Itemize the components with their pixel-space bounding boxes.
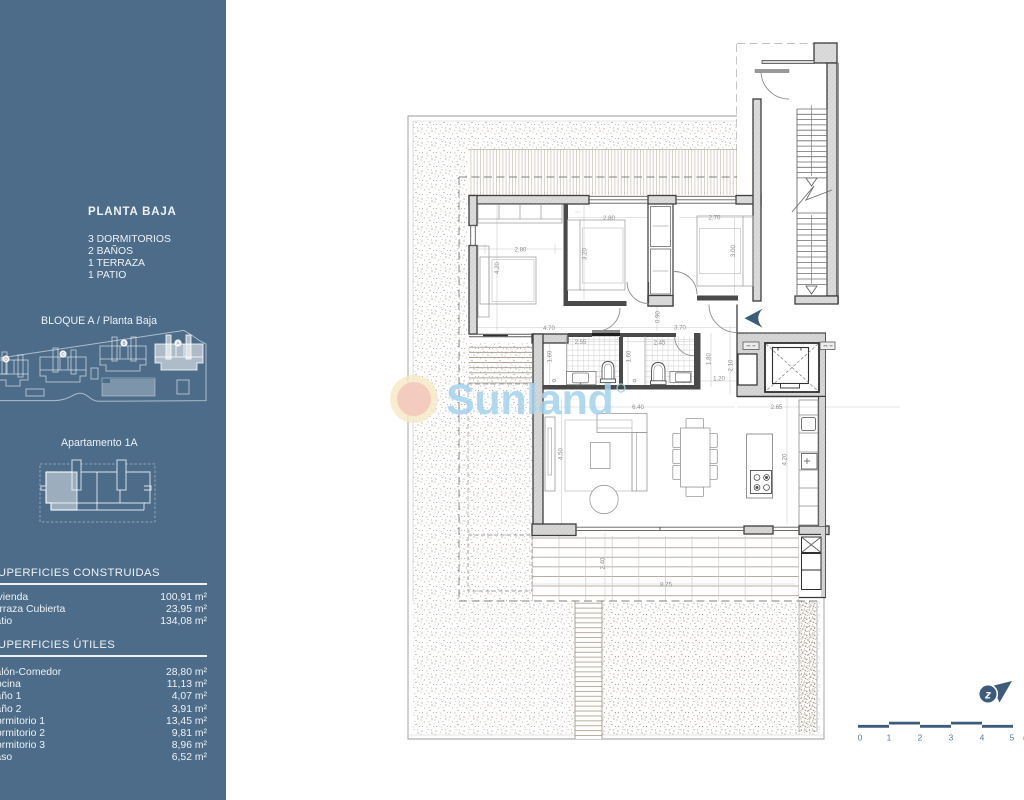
svg-text:4: 4 <box>980 733 985 743</box>
svg-text:5: 5 <box>1010 733 1015 743</box>
svg-text:8.75: 8.75 <box>660 582 672 589</box>
svg-text:3.20: 3.20 <box>582 247 589 259</box>
svg-text:2.65: 2.65 <box>771 404 783 411</box>
svg-text:1.60: 1.60 <box>547 350 554 362</box>
svg-text:2.10: 2.10 <box>728 359 735 371</box>
svg-text:2.80: 2.80 <box>603 215 615 222</box>
svg-text:1.20: 1.20 <box>713 376 725 383</box>
svg-text:3.00: 3.00 <box>730 244 737 256</box>
svg-text:z: z <box>984 688 991 702</box>
svg-text:2.80: 2.80 <box>515 247 527 254</box>
svg-text:4.70: 4.70 <box>543 325 555 332</box>
svg-text:0.90: 0.90 <box>655 310 662 322</box>
svg-text:Sunland: Sunland <box>446 376 614 424</box>
svg-text:4.20: 4.20 <box>782 453 789 465</box>
svg-text:3: 3 <box>949 733 954 743</box>
svg-text:0: 0 <box>858 733 863 743</box>
svg-text:4.20: 4.20 <box>494 261 501 273</box>
svg-text:2.70: 2.70 <box>709 215 721 222</box>
svg-text:6.40: 6.40 <box>632 404 644 411</box>
svg-text:2.40: 2.40 <box>600 557 607 569</box>
svg-text:1.60: 1.60 <box>626 350 633 362</box>
svg-text:3.70: 3.70 <box>674 325 686 332</box>
svg-text:2.45: 2.45 <box>654 340 666 347</box>
svg-text:2: 2 <box>918 733 923 743</box>
svg-text:4.50: 4.50 <box>558 447 565 459</box>
svg-text:1: 1 <box>887 733 892 743</box>
svg-text:1.80: 1.80 <box>706 352 713 364</box>
svg-text:2.55: 2.55 <box>575 339 587 346</box>
